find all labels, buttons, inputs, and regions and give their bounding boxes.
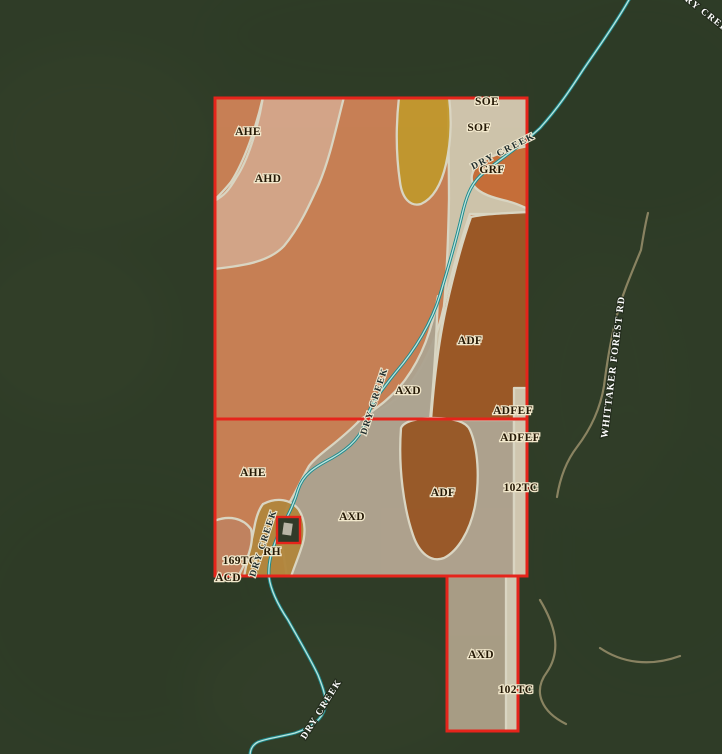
soil-label-ahe-top: AHE (235, 126, 261, 138)
soil-label-ahe-mid: AHE (240, 467, 266, 479)
soil-label-adfef-upper: ADFEF (493, 405, 533, 417)
soil-map-canvas[interactable]: SOE AHE AHD SOF GRF ADF AXD ADFEF ADFEF … (0, 0, 722, 754)
soil-label-102tc-right: 102TC (504, 482, 539, 494)
soil-label-adf-mid: ADF (431, 487, 456, 499)
soil-label-sof: SOF (467, 122, 490, 134)
soil-label-102tc-bottom: 102TC (499, 684, 534, 696)
soil-label-axd-top: AXD (395, 385, 421, 397)
soil-label-axd-mid: AXD (339, 511, 365, 523)
soil-label-ahd: AHD (255, 173, 281, 185)
soil-label-acd: ACD (215, 572, 241, 584)
soil-label-adf-top: ADF (458, 335, 483, 347)
structure-marker (277, 517, 300, 543)
soil-label-adfef-lower: ADFEF (500, 432, 540, 444)
soil-label-soe: SOE (475, 96, 499, 108)
soil-label-axd-bottom: AXD (468, 649, 494, 661)
